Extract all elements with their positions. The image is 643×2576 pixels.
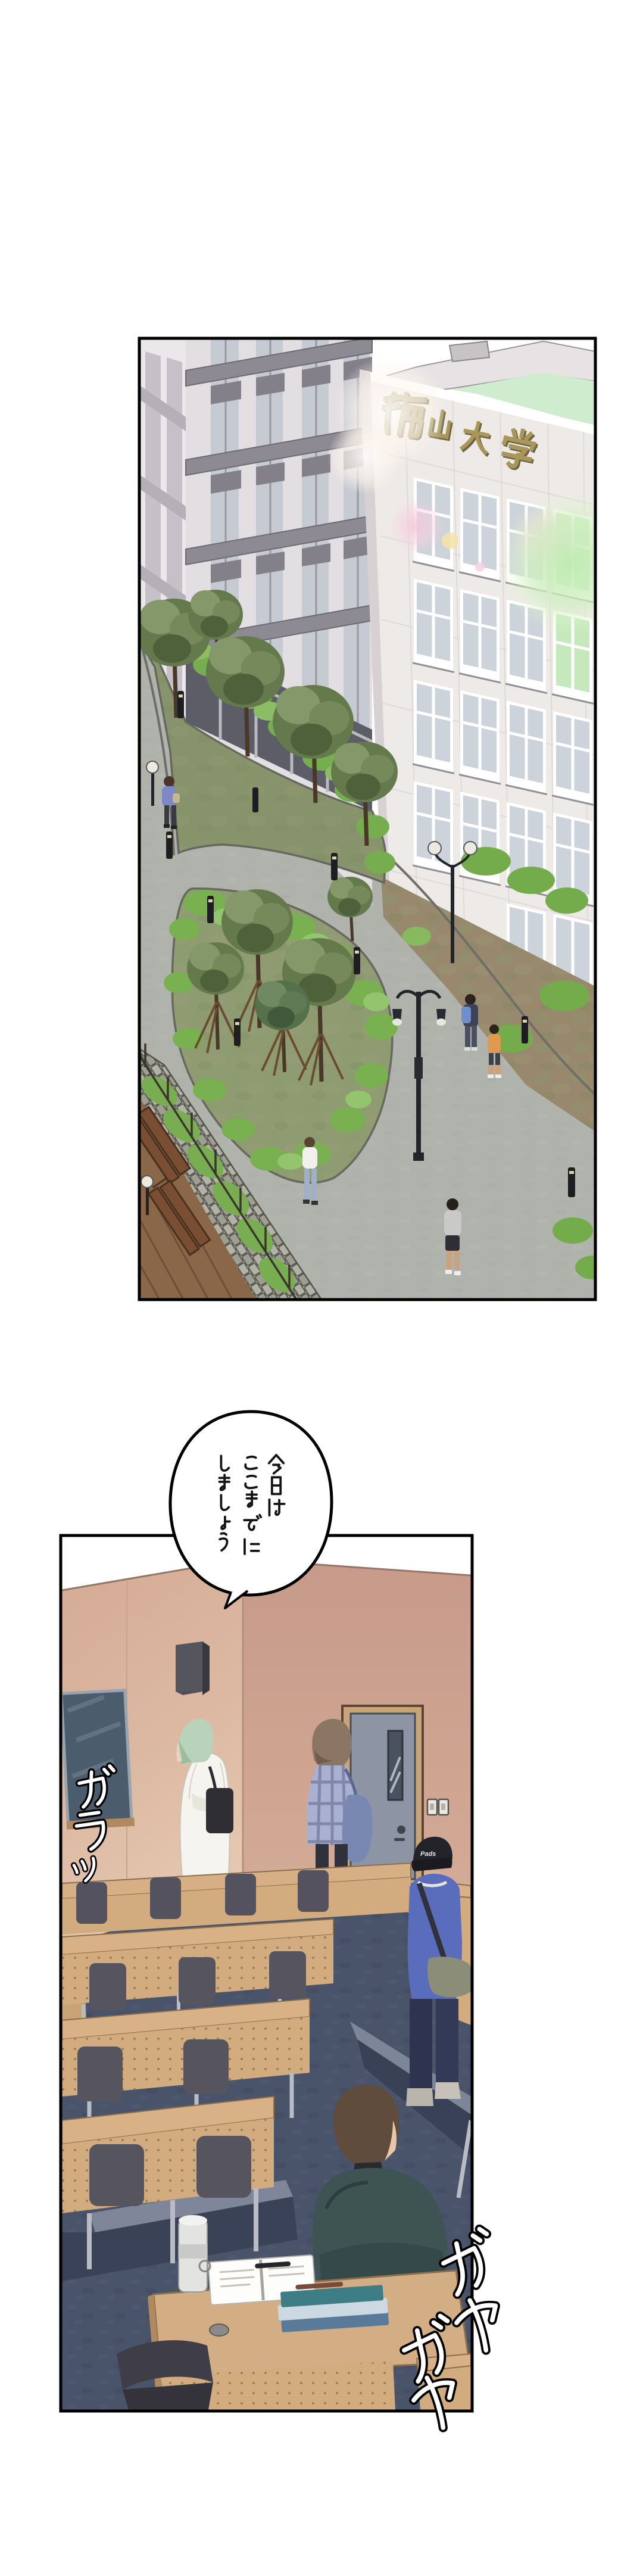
svg-text:Pads: Pads <box>420 1851 436 1858</box>
